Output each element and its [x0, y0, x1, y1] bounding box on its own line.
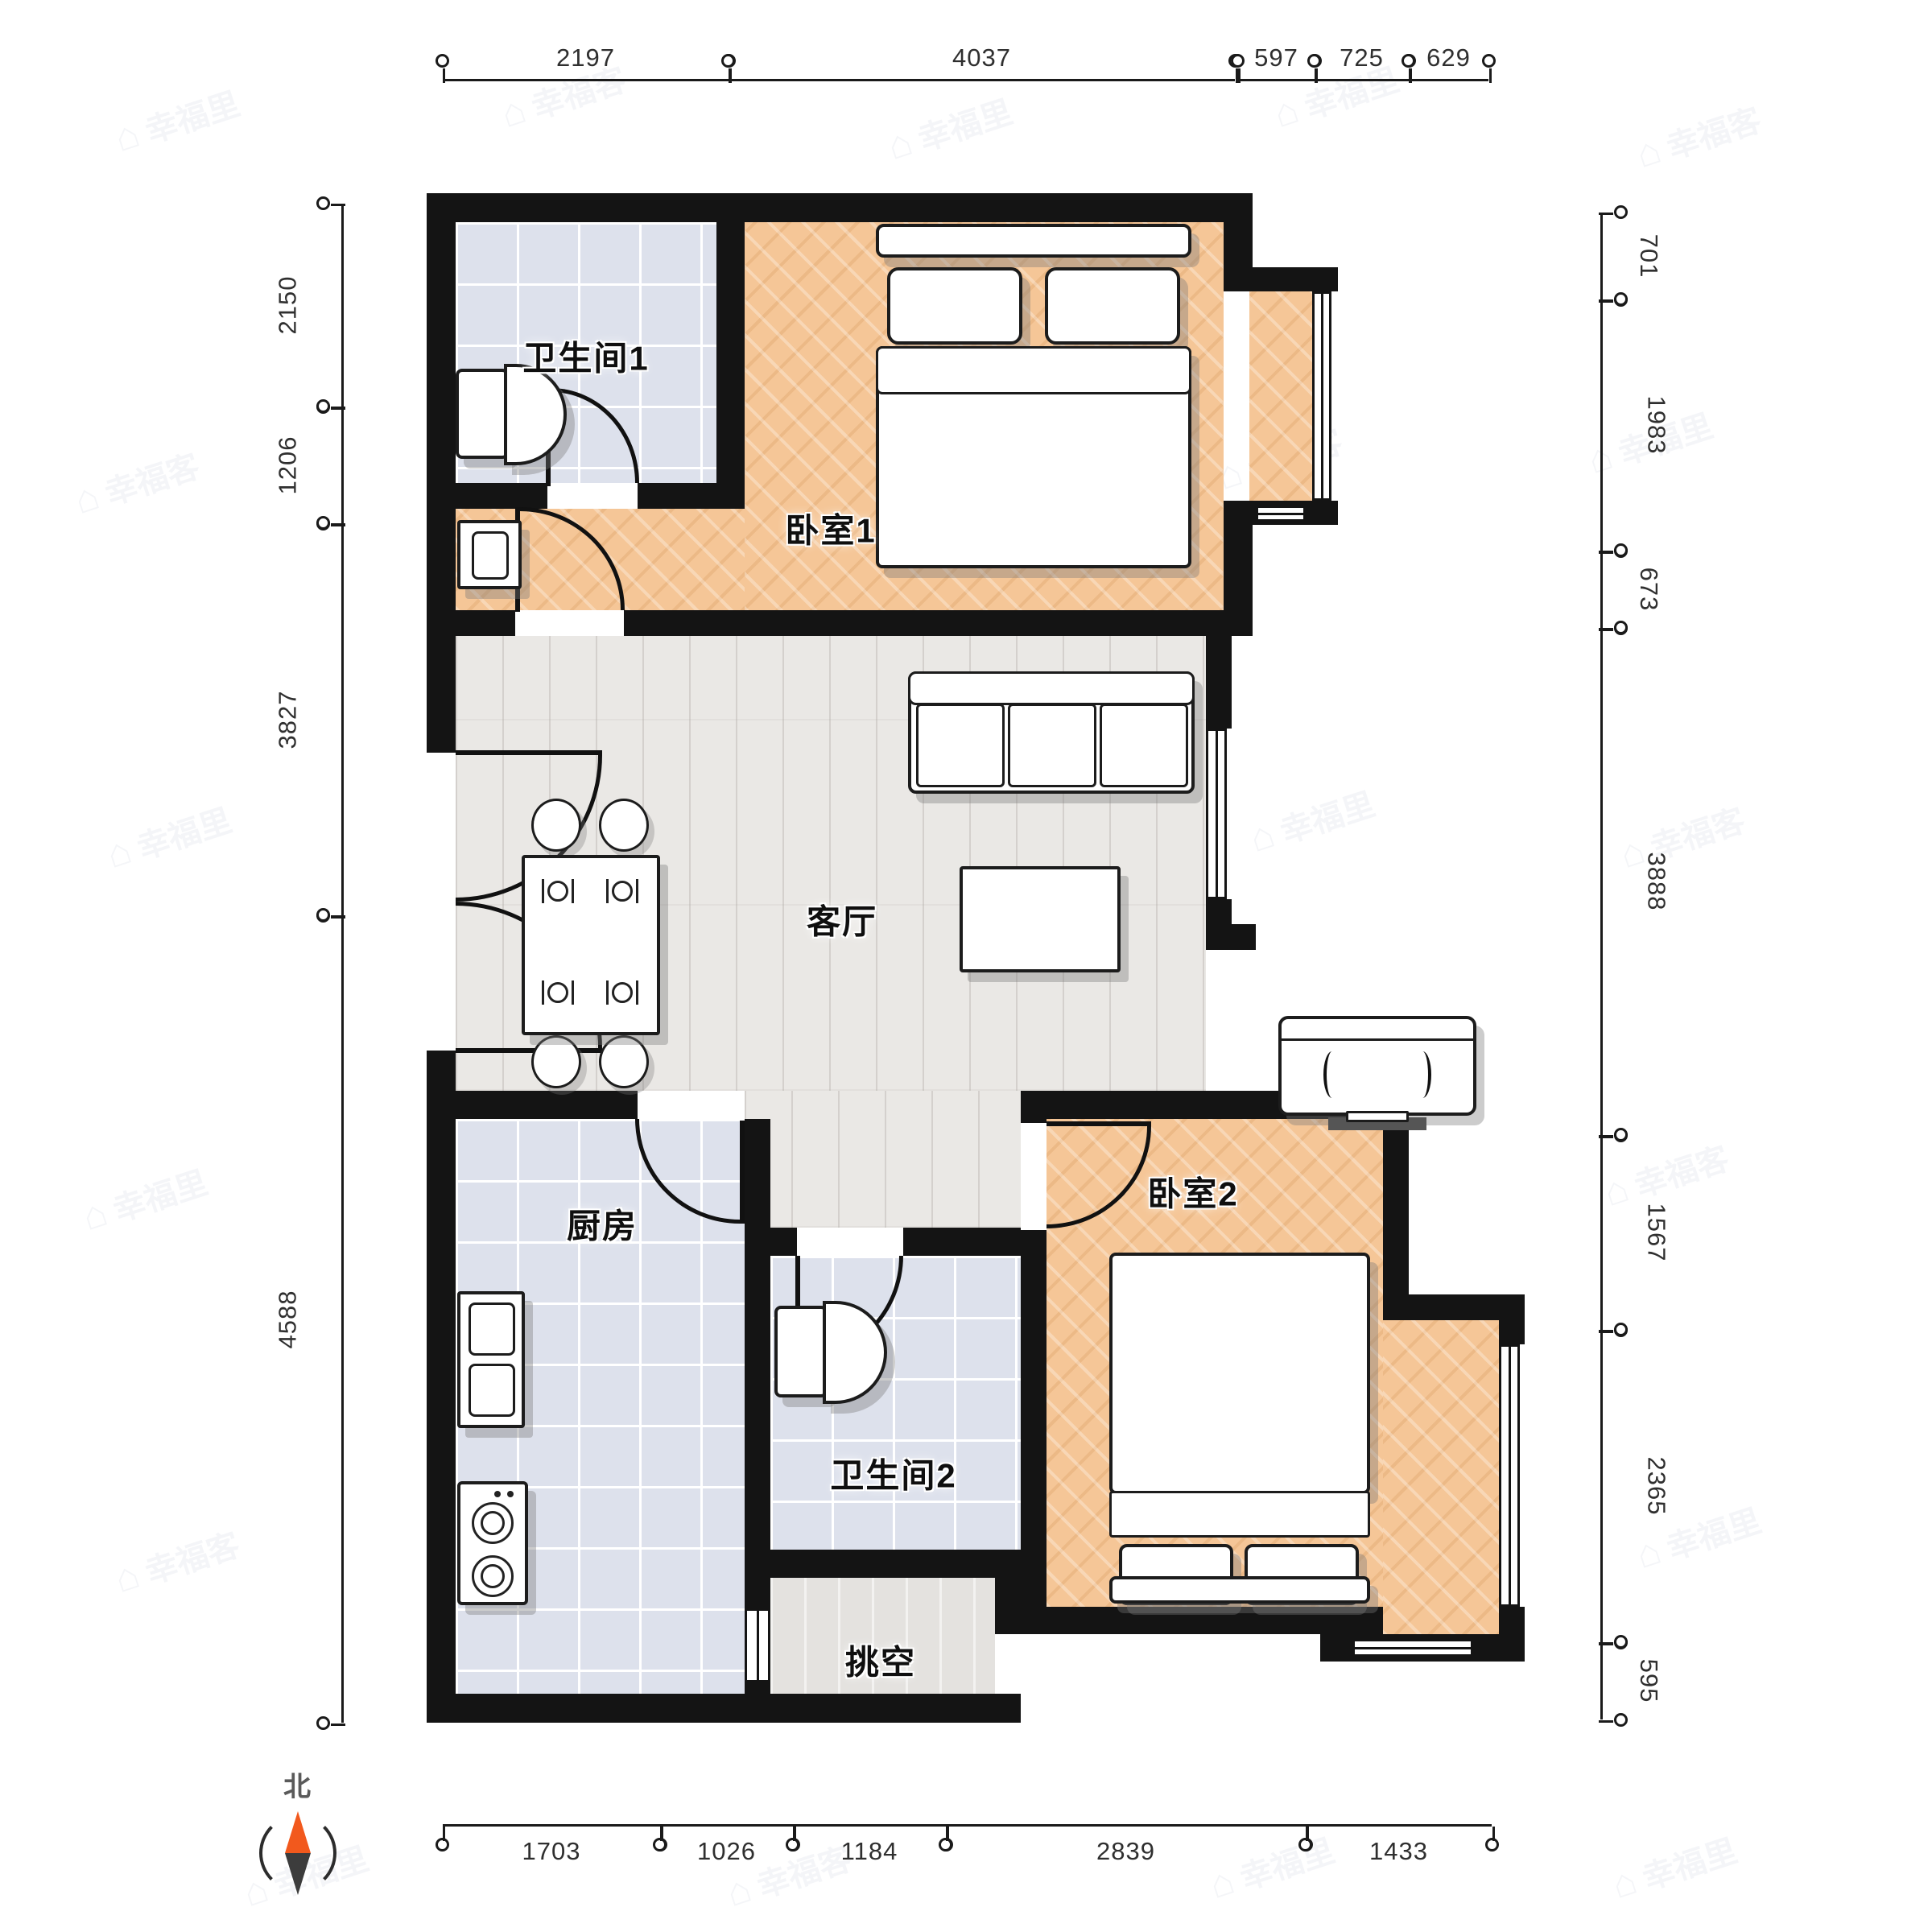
room-label-bathroom-1: 卫生间1	[522, 332, 649, 381]
double-bed	[1109, 1253, 1370, 1604]
wall	[745, 1119, 770, 1694]
watermark: ⌂幸福客	[109, 1519, 245, 1603]
dim-left-3: 3827	[341, 523, 344, 915]
wall	[995, 1607, 1383, 1634]
wall	[1206, 636, 1232, 729]
dim-bottom-3: 1184	[793, 1824, 946, 1827]
room-label-kitchen: 厨房	[567, 1199, 638, 1249]
bedroom-1-bay-window	[1312, 291, 1331, 501]
dim-left-4: 4588	[341, 915, 344, 1723]
dim-right-2: 1983	[1600, 299, 1603, 551]
room-label-living-room: 客厅	[807, 895, 877, 944]
dim-right-3: 673	[1600, 551, 1603, 628]
wall	[427, 193, 1253, 222]
dim-bottom-1: 1703	[443, 1824, 660, 1827]
tv	[1278, 1016, 1476, 1130]
bedroom-2-bay-floor	[1383, 1320, 1501, 1634]
dim-left-2: 1206	[341, 407, 344, 523]
wall	[1206, 924, 1256, 950]
hallway-floor	[745, 1091, 1021, 1228]
room-label-bedroom-1: 卧室1	[785, 504, 876, 553]
coffee-table	[960, 866, 1121, 972]
watermark: ⌂幸福里	[1244, 778, 1380, 862]
wall	[716, 222, 745, 509]
wall	[745, 1550, 1046, 1578]
watermark: ⌂幸福里	[1606, 1825, 1742, 1909]
watermark: ⌂幸福客	[1630, 94, 1766, 178]
bedroom-1-small-window	[1256, 506, 1306, 522]
dim-bottom-4: 2839	[946, 1824, 1306, 1827]
dim-bottom-2: 1026	[660, 1824, 793, 1827]
watermark: ⌂幸福里	[881, 86, 1018, 170]
toilet	[774, 1301, 889, 1404]
kitchen-sink	[457, 1291, 525, 1428]
dim-top-5: 629	[1409, 79, 1488, 81]
sofa	[908, 671, 1195, 794]
stove	[457, 1481, 528, 1605]
wall	[995, 1578, 1021, 1634]
dim-top-4: 725	[1315, 79, 1409, 81]
entry-opening	[427, 753, 456, 1051]
dim-right-7: 595	[1600, 1642, 1603, 1719]
watermark: ⌂幸福里	[1203, 1825, 1340, 1909]
compass-icon	[256, 1808, 340, 1898]
bedroom-1-bay-floor	[1249, 272, 1317, 505]
wall	[1499, 1320, 1525, 1344]
watermark: ⌂幸福里	[109, 78, 245, 162]
watermark: ⌂幸福里	[101, 795, 237, 878]
bedroom-1-door-opening	[515, 610, 624, 636]
dining-chair	[599, 1035, 649, 1088]
bathroom-2-door-opening	[797, 1228, 903, 1256]
floor-plan: ⌂幸福里 ⌂幸福客 ⌂幸福里 ⌂幸福里 ⌂幸福客 ⌂幸福客 ⌂幸福里 ⌂幸福里 …	[0, 0, 1932, 1932]
wall	[1224, 193, 1253, 277]
bedroom-2-door-opening	[1021, 1123, 1046, 1230]
washbasin	[457, 520, 522, 589]
wall	[1499, 1607, 1525, 1634]
void-window	[745, 1608, 770, 1682]
bathroom-1-door-opening	[547, 483, 638, 509]
north-label: 北	[283, 1765, 311, 1804]
watermark: ⌂幸福里	[76, 1157, 213, 1241]
kitchen-door-leaf	[740, 1121, 745, 1224]
living-room-window	[1206, 729, 1227, 899]
room-label-bedroom-2: 卧室2	[1147, 1167, 1238, 1216]
wall	[1224, 267, 1338, 291]
room-label-void: 挑空	[845, 1636, 916, 1685]
wall	[1383, 1119, 1409, 1320]
dim-top-2: 4037	[729, 79, 1235, 81]
dining-chair	[531, 799, 581, 852]
watermark: ⌂幸福客	[1614, 795, 1750, 878]
bedroom-2-bay-window	[1499, 1344, 1520, 1607]
dim-top-1: 2197	[443, 79, 729, 81]
watermark: ⌂幸福客	[68, 440, 204, 524]
dim-right-5: 1567	[1600, 1135, 1603, 1330]
dining-chair	[599, 799, 649, 852]
wall	[1383, 1294, 1525, 1320]
dim-left-1: 2150	[341, 204, 344, 407]
bedroom-2-bottom-window	[1352, 1639, 1473, 1657]
room-label-bathroom-2: 卫生间2	[830, 1449, 956, 1498]
wall	[427, 1694, 1021, 1723]
dim-top-3: 597	[1238, 79, 1315, 81]
dim-bottom-5: 1433	[1306, 1824, 1492, 1827]
dining-chair	[531, 1035, 581, 1088]
dim-right-4: 3888	[1600, 628, 1603, 1135]
dining-table	[507, 789, 700, 1103]
dim-right-6: 2365	[1600, 1330, 1603, 1642]
dim-right-1: 701	[1600, 213, 1603, 299]
double-bed	[876, 224, 1191, 568]
